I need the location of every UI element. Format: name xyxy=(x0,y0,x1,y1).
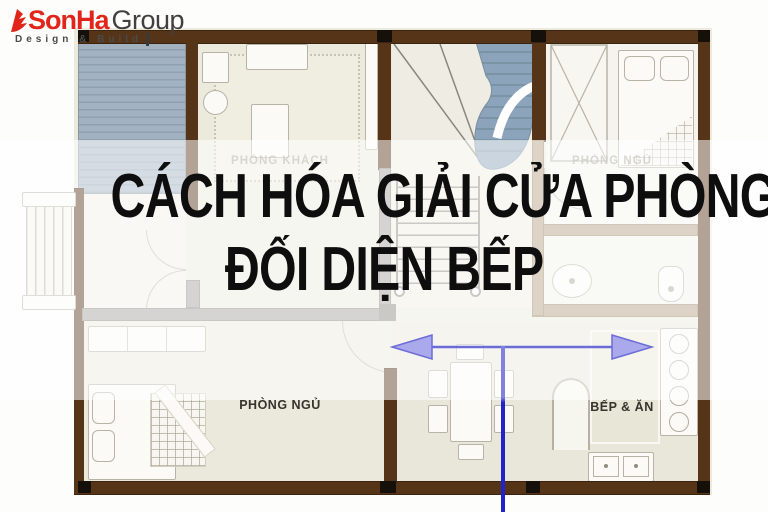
chair xyxy=(428,405,448,433)
sink-drain-dot xyxy=(604,464,608,468)
pillow xyxy=(660,56,689,81)
side-table-round xyxy=(203,90,228,115)
brand-name-red: SonHa xyxy=(28,5,109,36)
junction-block xyxy=(526,481,540,493)
sink-drain-dot xyxy=(634,464,638,468)
flame-icon xyxy=(10,7,28,33)
vertical-guide-line xyxy=(501,346,505,512)
wall-stair-bedroom xyxy=(532,42,546,142)
corner-block xyxy=(698,30,710,42)
junction-block xyxy=(380,481,396,493)
armchair xyxy=(202,52,229,83)
sofa xyxy=(246,44,308,70)
chair xyxy=(458,444,484,460)
brand-name-dark: Group xyxy=(112,5,185,36)
title-line-1: CÁCH HÓA GIẢI CỬA PHÒNG NGỦ xyxy=(0,160,768,233)
room-label-kitchen: BẾP & ĂN xyxy=(562,400,682,414)
double-headed-arrow-icon xyxy=(388,331,656,363)
logo-bar xyxy=(146,33,149,46)
logo-tagline: Design & Build xyxy=(15,34,142,45)
burner xyxy=(669,412,689,432)
brand-logo: SonHa Group Design & Build xyxy=(10,4,184,46)
title-line-2: ĐỐI DIỆN BẾP xyxy=(0,233,768,306)
pillow xyxy=(624,56,655,81)
room-label-bedroom-bottom: PHÒNG NGỦ xyxy=(205,398,355,412)
tv-cabinet xyxy=(365,42,378,150)
page: { "logo": { "brand_red": "SonHa", "brand… xyxy=(0,0,768,512)
logo-row: SonHa Group xyxy=(10,4,184,36)
page-title: CÁCH HÓA GIẢI CỬA PHÒNG NGỦ ĐỐI DIỆN BẾP xyxy=(0,160,768,306)
corner-block xyxy=(78,481,91,493)
junction-block xyxy=(531,30,546,42)
corner-block xyxy=(697,481,710,493)
junction-block xyxy=(377,30,392,42)
pillow xyxy=(92,430,115,462)
